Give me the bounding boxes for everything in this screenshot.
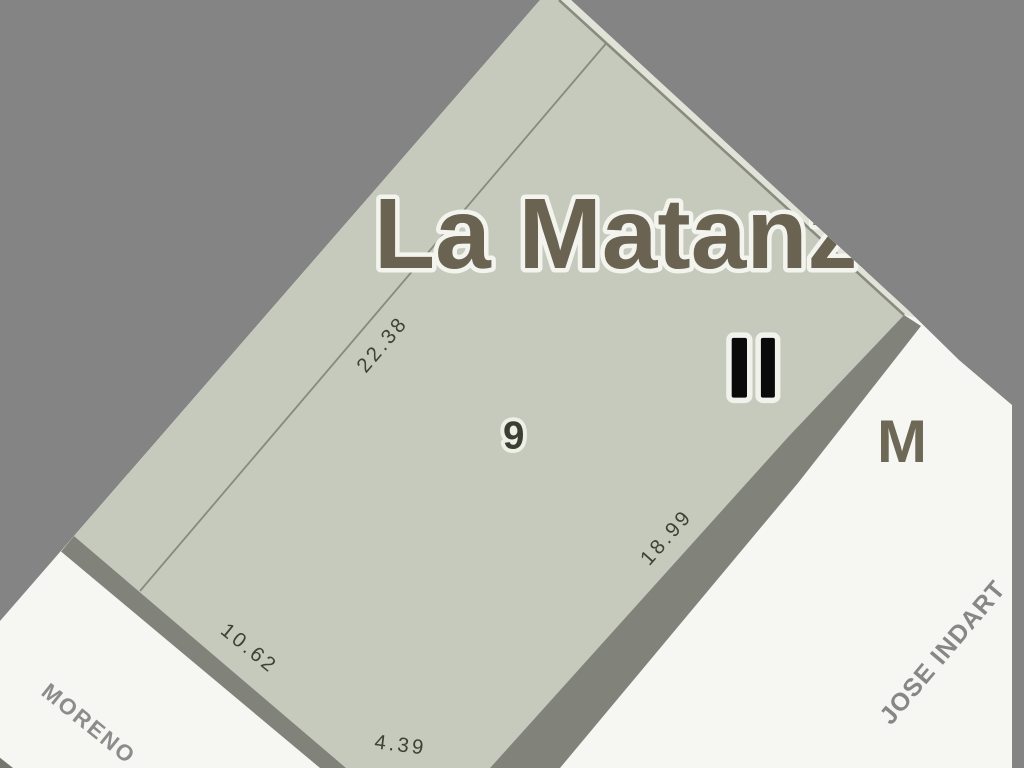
svg-text:9: 9 — [503, 415, 524, 458]
svg-text:M: M — [877, 408, 927, 475]
